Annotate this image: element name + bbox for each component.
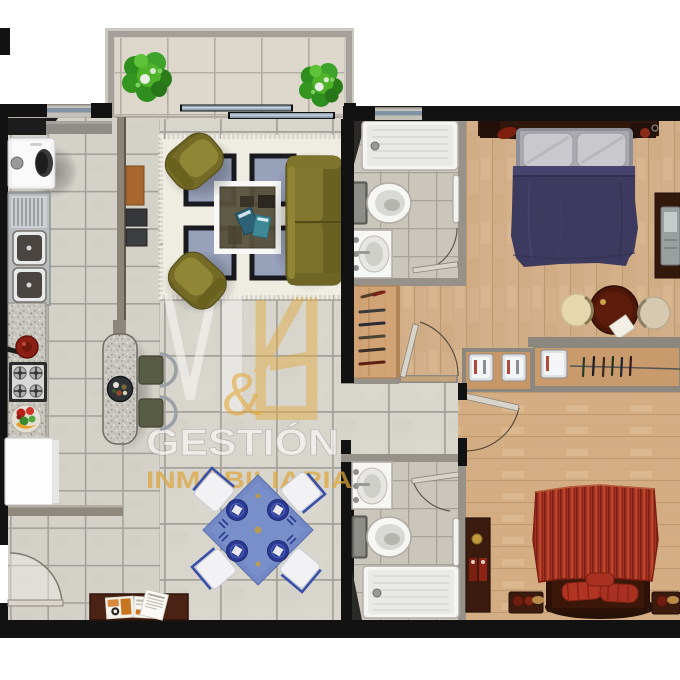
svg-text:GESTIÓN: GESTIÓN [146,421,339,463]
